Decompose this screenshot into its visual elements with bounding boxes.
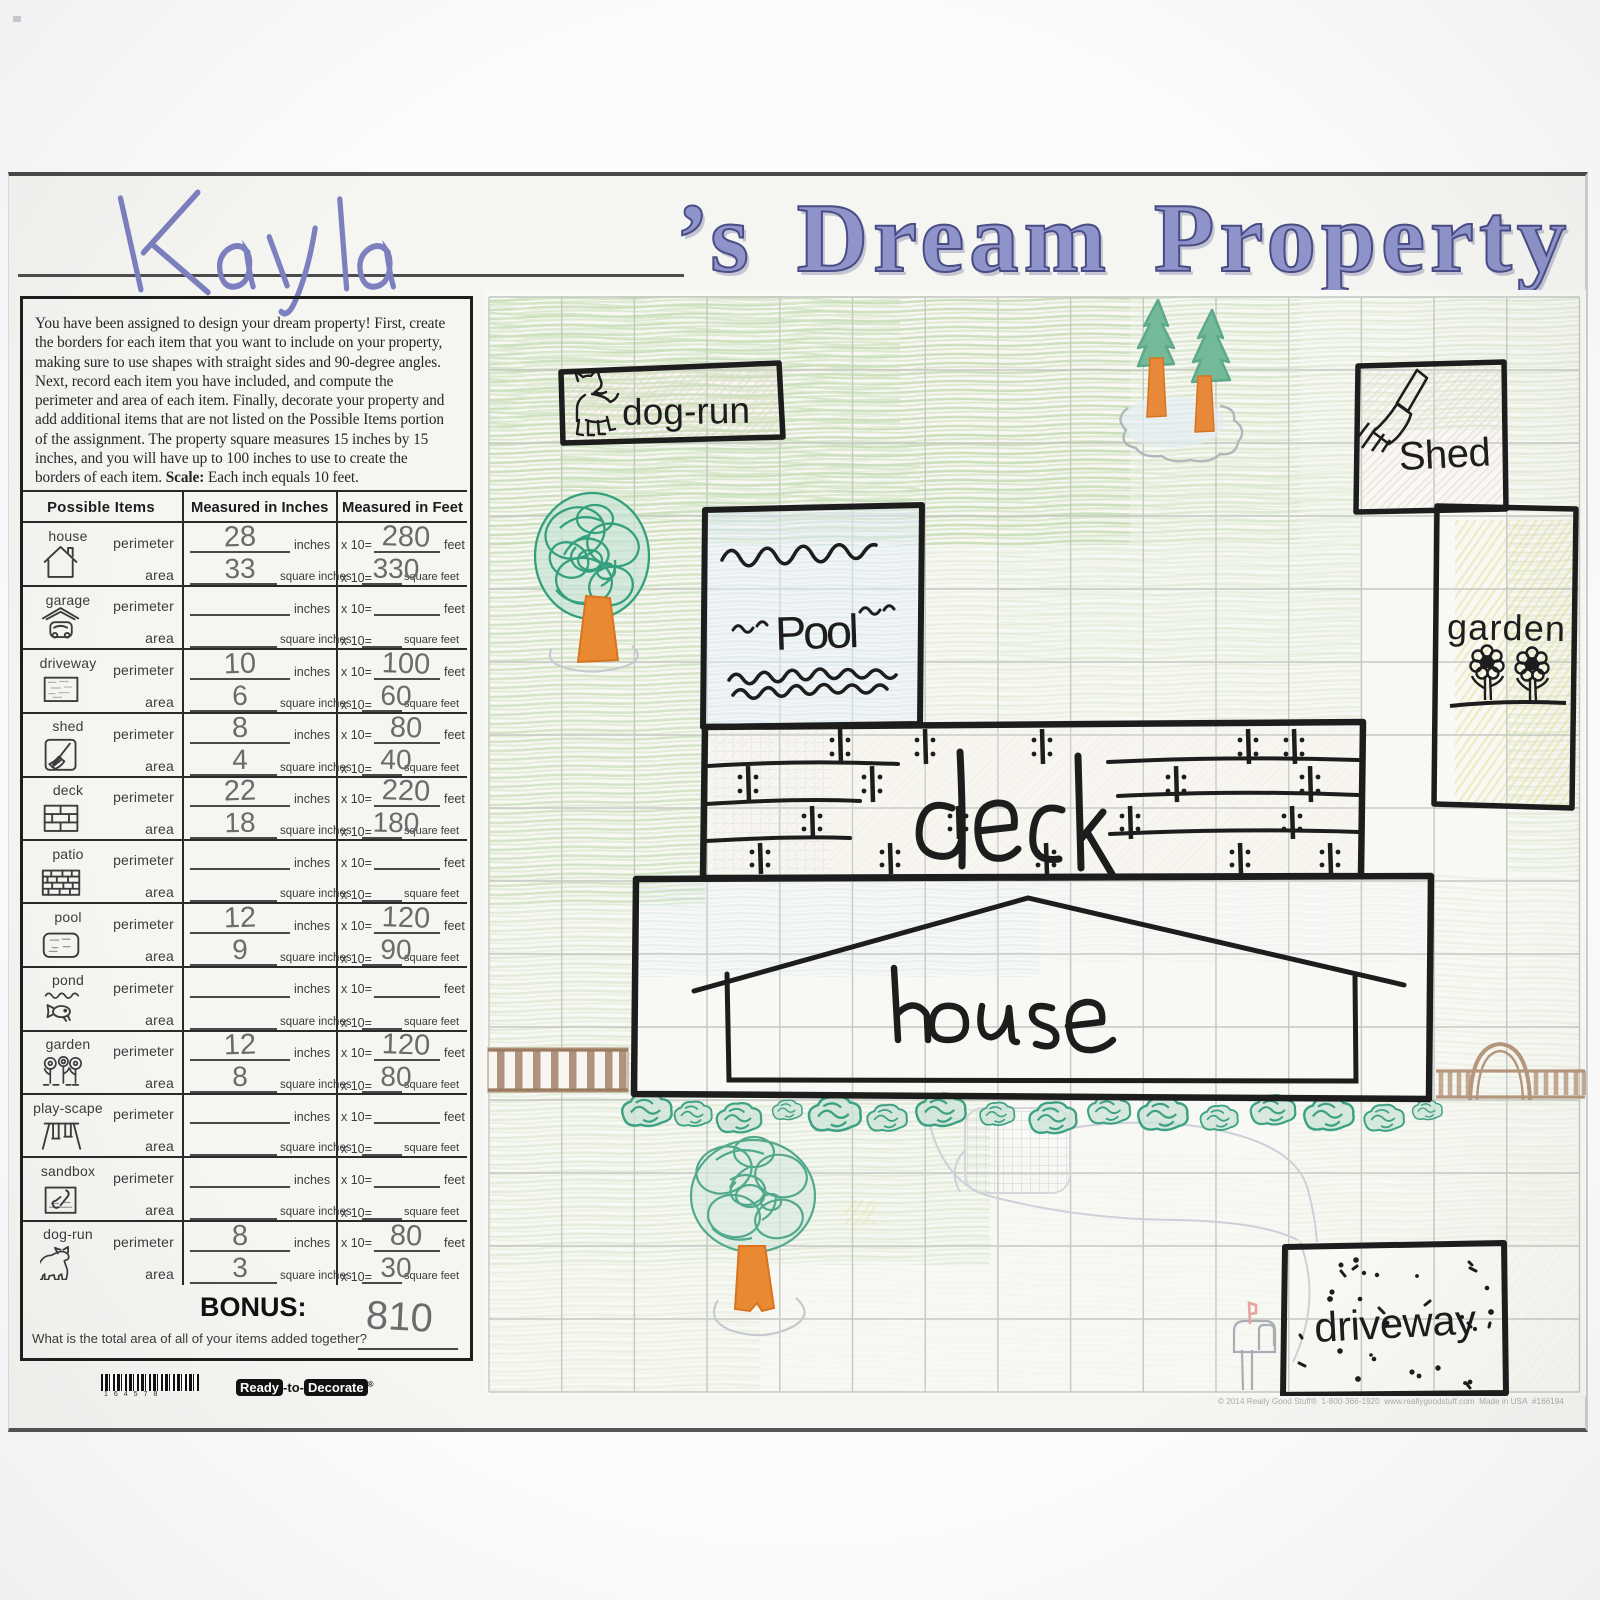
svg-text:Pool: Pool: [774, 604, 860, 660]
svg-text:dog-run: dog-run: [622, 390, 751, 433]
svg-text:garden: garden: [1447, 606, 1566, 649]
svg-text:driveway: driveway: [1313, 1296, 1477, 1351]
svg-text:Shed: Shed: [1398, 430, 1492, 479]
